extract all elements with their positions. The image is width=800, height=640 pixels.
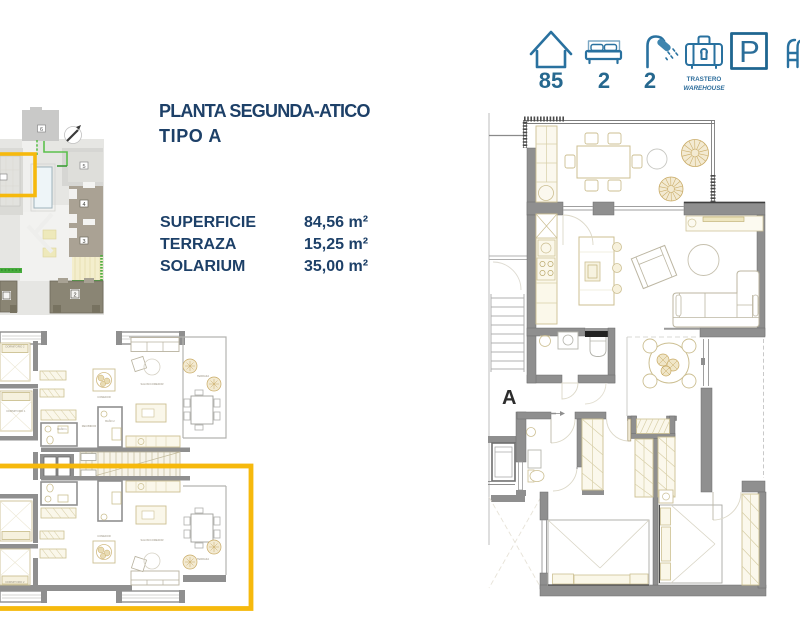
svg-text:2: 2 — [598, 68, 610, 93]
svg-text:SALON/COMEDOR: SALON/COMEDOR — [140, 538, 163, 542]
svg-text:TERRAZA: TERRAZA — [197, 557, 209, 561]
svg-text:COMEDOR: COMEDOR — [97, 395, 111, 399]
svg-text:35,00 m²: 35,00 m² — [304, 258, 368, 275]
svg-text:COMEDOR: COMEDOR — [97, 534, 111, 538]
svg-text:TIPO A: TIPO A — [159, 126, 222, 146]
svg-text:SUPERFICIE: SUPERFICIE — [160, 214, 256, 231]
svg-text:6: 6 — [40, 127, 43, 133]
svg-text:4: 4 — [82, 202, 85, 208]
svg-text:84,56 m²: 84,56 m² — [304, 214, 368, 231]
svg-text:85: 85 — [539, 68, 563, 93]
svg-text:SALON/COMEDOR: SALON/COMEDOR — [140, 382, 163, 386]
svg-text:SOLARIUM: SOLARIUM — [160, 258, 245, 275]
svg-text:TERRAZA: TERRAZA — [160, 236, 237, 253]
svg-text:TERRAZA: TERRAZA — [197, 374, 209, 378]
svg-text:5: 5 — [82, 164, 85, 170]
svg-text:DORMITORIO 2: DORMITORIO 2 — [6, 580, 26, 584]
svg-text:2: 2 — [644, 68, 656, 93]
svg-text:DORMITORIO 1: DORMITORIO 1 — [7, 409, 27, 413]
svg-text:RECIBIDOR: RECIBIDOR — [82, 424, 97, 428]
svg-text:DORMITORIO 2: DORMITORIO 2 — [6, 345, 26, 349]
svg-text:P: P — [739, 34, 760, 69]
svg-text:PLANTA SEGUNDA-ATICO: PLANTA SEGUNDA-ATICO — [159, 101, 370, 121]
svg-text:A: A — [502, 387, 516, 409]
svg-text:TRASTERO: TRASTERO — [687, 76, 722, 83]
svg-text:WAREHOUSE: WAREHOUSE — [683, 85, 725, 92]
svg-text:15,25 m²: 15,25 m² — [304, 236, 368, 253]
svg-text:2: 2 — [73, 293, 76, 299]
svg-text:3: 3 — [82, 239, 85, 245]
